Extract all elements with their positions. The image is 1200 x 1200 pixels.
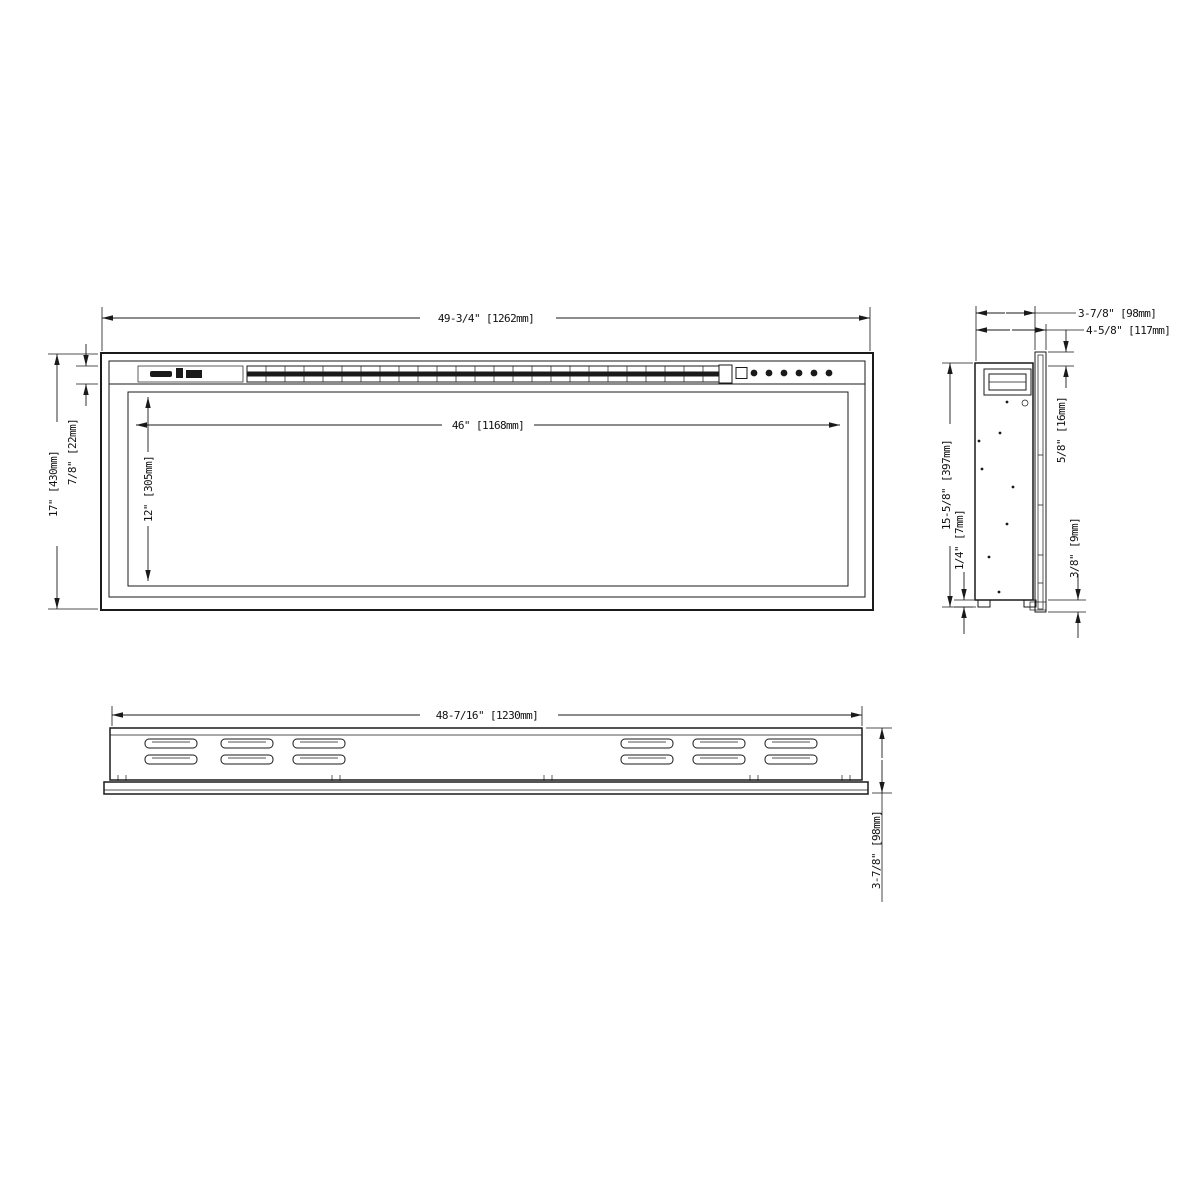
- dim-side-foot-height: 1/4" [7mm]: [953, 510, 976, 634]
- control-dot-5: [811, 370, 818, 377]
- side-height-label: 15-5/8" [397mm]: [940, 440, 953, 530]
- front-inner-frame: [109, 361, 865, 597]
- power-button: [736, 368, 747, 379]
- side-flange-overhang-label: 3/8" [9mm]: [1068, 518, 1081, 578]
- control-dot-6: [826, 370, 833, 377]
- vent-slot: [145, 739, 197, 748]
- side-total-depth-label: 4-5/8" [117mm]: [1086, 324, 1170, 337]
- vent-slot: [693, 755, 745, 764]
- dim-side-flange-offset: 5/8" [16mm]: [1048, 330, 1074, 463]
- vent-bar-end-cap: [719, 365, 732, 383]
- front-view: 49-3/4" [1262mm] 46" [1168mm] 12" [305mm…: [47, 307, 873, 610]
- fireplace-technical-drawing: 49-3/4" [1262mm] 46" [1168mm] 12" [305mm…: [0, 0, 1200, 1200]
- dim-side-flange-overhang: 3/8" [9mm]: [1048, 518, 1086, 638]
- vent-slot: [145, 755, 197, 764]
- vent-slot: [621, 739, 673, 748]
- front-top-vent-bar: [247, 365, 732, 383]
- front-opening-height-label: 12" [305mm]: [142, 456, 155, 522]
- control-dot-1: [751, 370, 758, 377]
- dim-front-width: 49-3/4" [1262mm]: [102, 307, 870, 351]
- control-buttons: [736, 368, 832, 379]
- side-screw-dots: [978, 401, 1015, 594]
- dim-bottom-width: 48-7/16" [1230mm]: [112, 706, 862, 726]
- bottom-view: 48-7/16" [1230mm] 3-7/8" [98mm]: [104, 706, 892, 902]
- side-knockout-circle: [1022, 400, 1028, 406]
- dim-front-top-trim: 7/8" [22mm]: [66, 344, 98, 485]
- vent-slot: [293, 755, 345, 764]
- vent-slot: [221, 755, 273, 764]
- vent-slot: [293, 739, 345, 748]
- dim-side-total-depth: 4-5/8" [117mm]: [976, 324, 1170, 350]
- side-heater-box: [984, 369, 1031, 395]
- vent-slot: [221, 739, 273, 748]
- bottom-depth-label: 3-7/8" [98mm]: [870, 811, 883, 889]
- front-top-trim-label: 7/8" [22mm]: [66, 419, 79, 485]
- vent-slots: [145, 739, 817, 764]
- dim-front-opening-width: 46" [1168mm]: [136, 419, 840, 432]
- dim-bottom-depth: 3-7/8" [98mm]: [866, 728, 892, 902]
- side-foot-height-label: 1/4" [7mm]: [953, 510, 966, 570]
- front-height-label: 17" [430mm]: [47, 451, 60, 517]
- side-front-flange: [1035, 352, 1046, 612]
- bottom-front-flange: [104, 782, 868, 794]
- vent-slot: [765, 739, 817, 748]
- bottom-body: [110, 728, 862, 780]
- control-dot-4: [796, 370, 803, 377]
- brand-logo: [138, 366, 243, 382]
- front-width-label: 49-3/4" [1262mm]: [438, 312, 534, 325]
- side-view: 3-7/8" [98mm] 4-5/8" [117mm] 5/8" [16mm]…: [940, 306, 1170, 638]
- front-opening-width-label: 46" [1168mm]: [452, 419, 524, 432]
- vent-slot: [765, 755, 817, 764]
- side-flange-offset-label: 5/8" [16mm]: [1055, 397, 1068, 463]
- side-body: [975, 363, 1033, 600]
- side-feet: [978, 600, 1046, 610]
- vent-slot: [693, 739, 745, 748]
- control-dot-3: [781, 370, 788, 377]
- bottom-width-label: 48-7/16" [1230mm]: [436, 709, 538, 722]
- side-depth-label: 3-7/8" [98mm]: [1078, 307, 1156, 320]
- drawing-canvas: 49-3/4" [1262mm] 46" [1168mm] 12" [305mm…: [0, 0, 1200, 1200]
- control-dot-2: [766, 370, 773, 377]
- vent-slot: [621, 755, 673, 764]
